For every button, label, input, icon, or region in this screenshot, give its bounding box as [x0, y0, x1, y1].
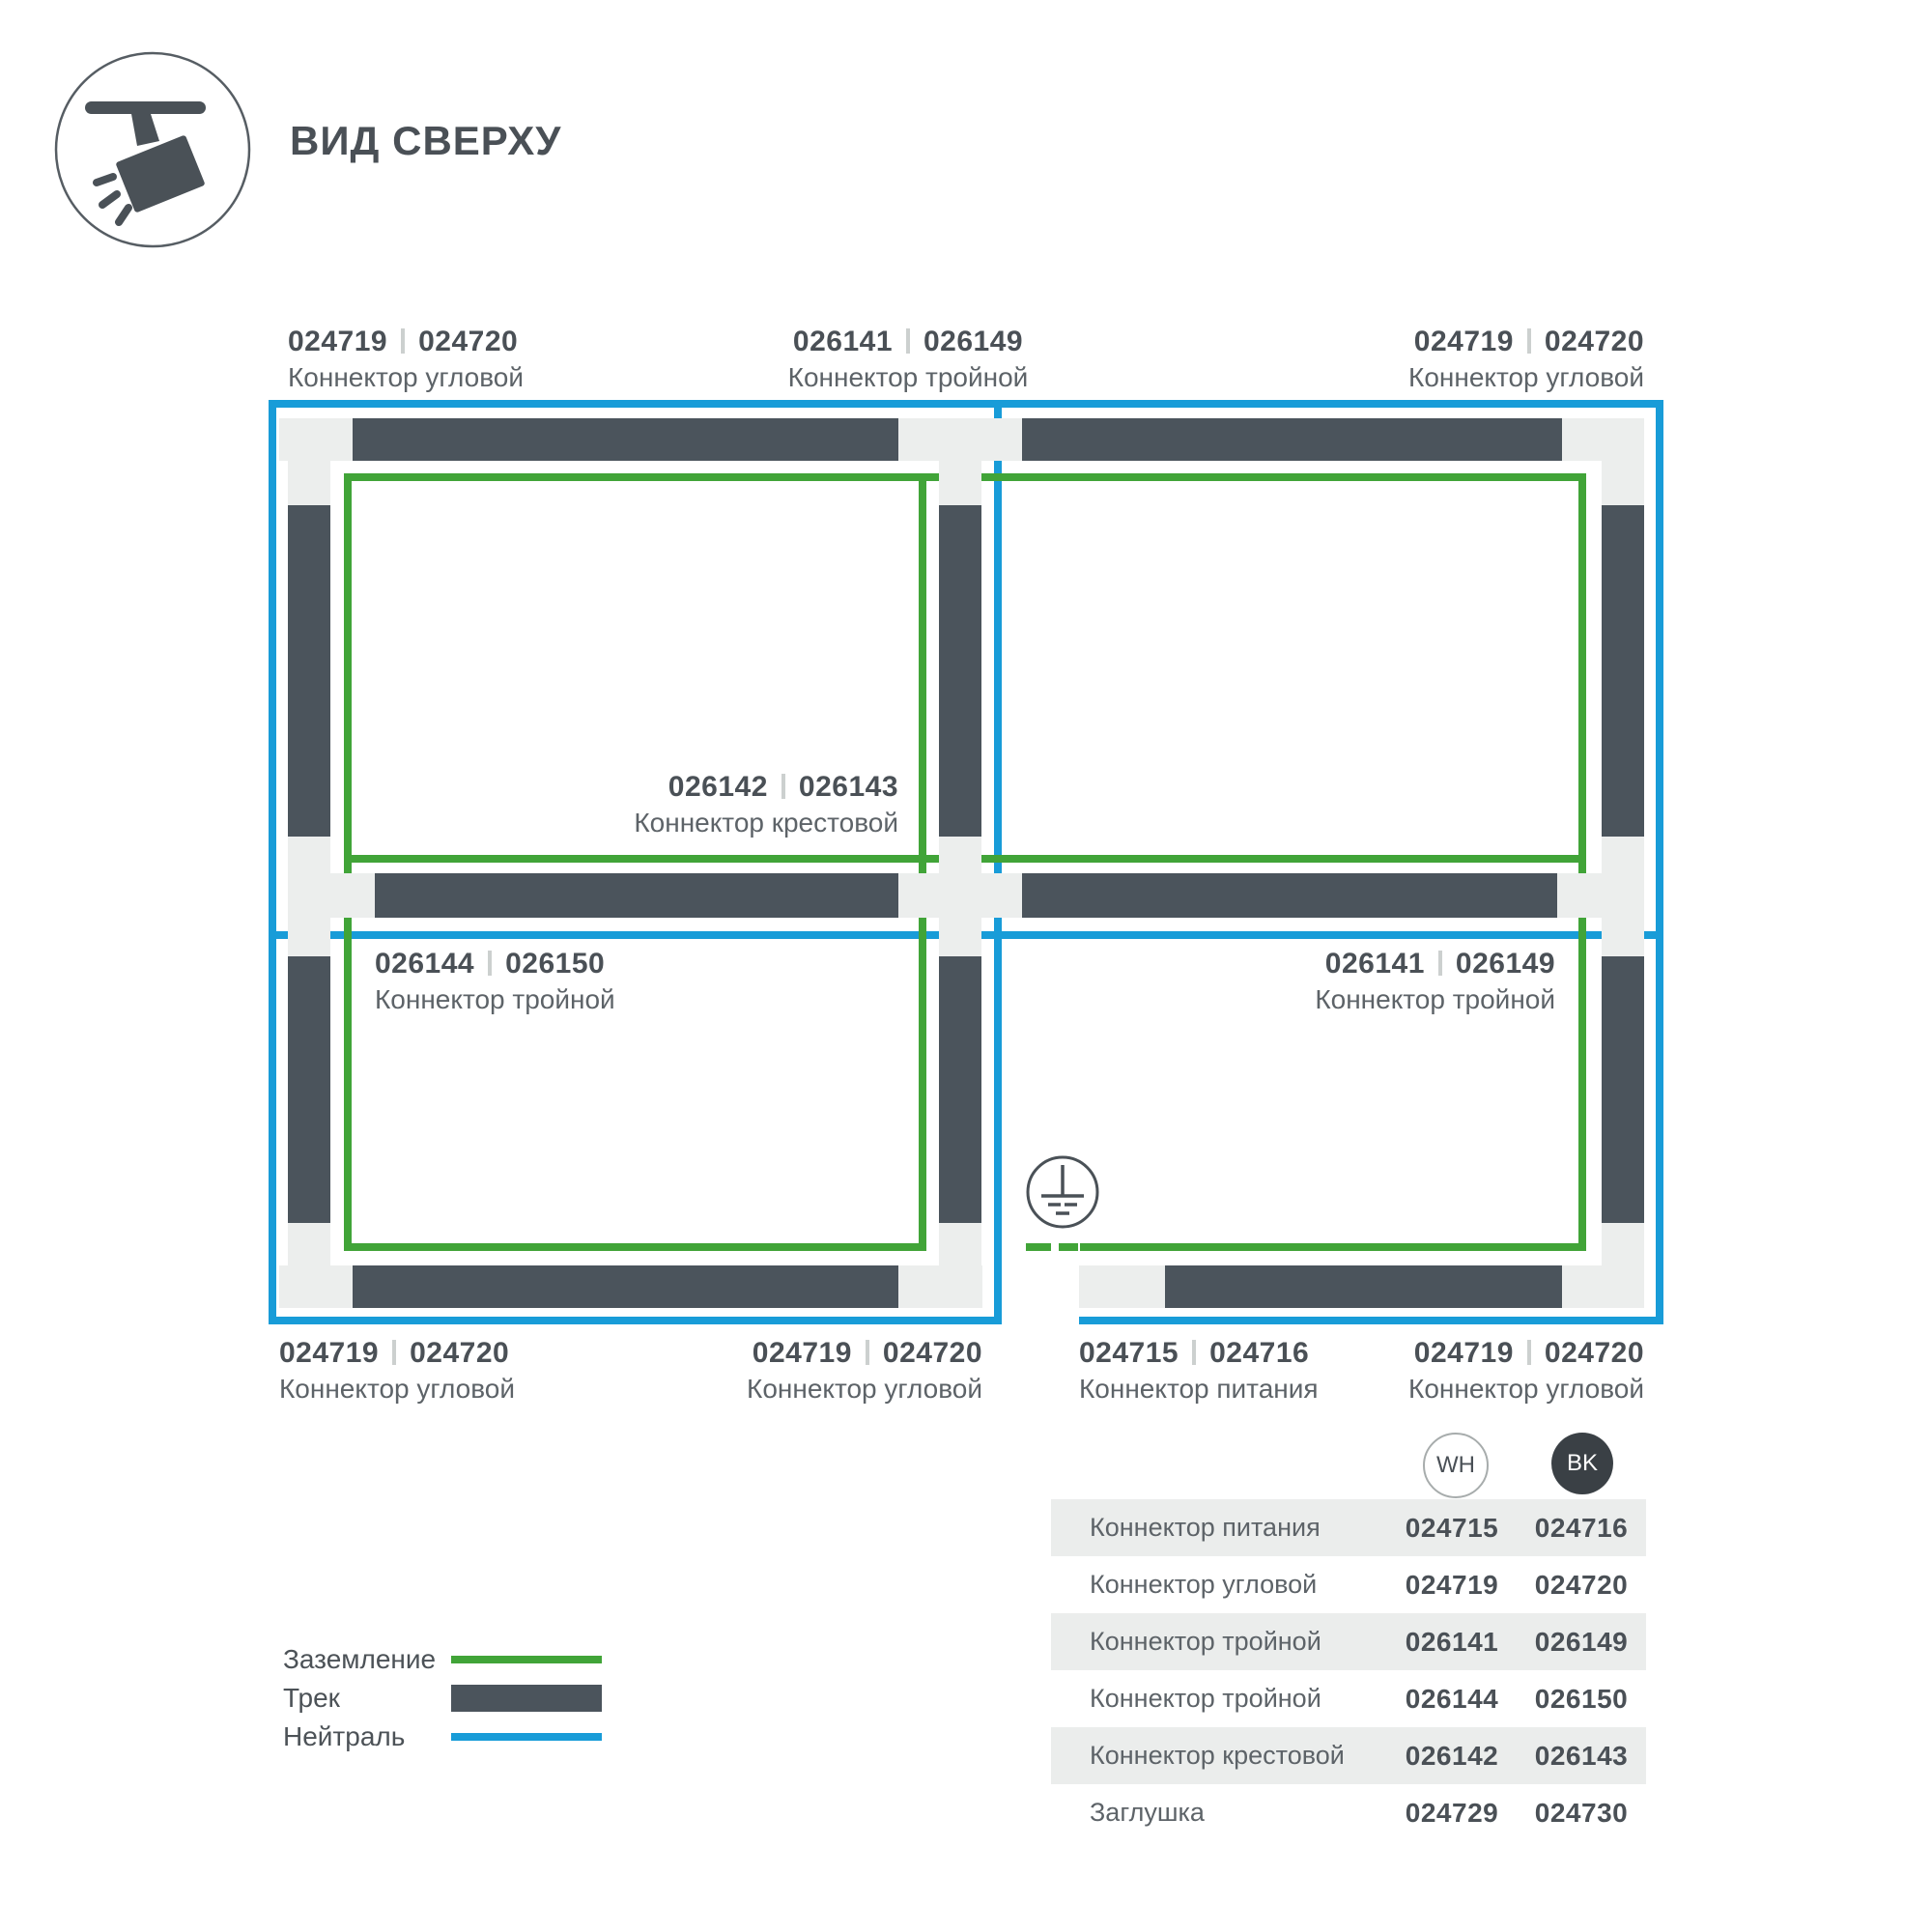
- connector-block-tee-left: [288, 837, 330, 956]
- connector-block-corner-bottom-right: [1562, 1265, 1644, 1308]
- page-title: ВИД СВЕРХУ: [290, 118, 561, 164]
- ground-line-bottom-left: [344, 1243, 926, 1251]
- connector-block-power-feed: [1079, 1265, 1165, 1308]
- code-separator: [1527, 1340, 1531, 1365]
- article-codes: 026141026149: [739, 326, 1077, 358]
- connector-block-corner-top-left: [288, 461, 330, 505]
- connector-name: Коннектор угловой: [1408, 1374, 1644, 1405]
- color-badge-white: WH: [1423, 1433, 1489, 1498]
- code-separator: [906, 328, 910, 354]
- connector-block-tee-top: [898, 418, 1022, 461]
- part-name: Коннектор угловой: [1051, 1570, 1387, 1600]
- track-spotlight-icon: [53, 50, 252, 249]
- connector-label-bottom-middle: 024719024720 Коннектор угловой: [747, 1337, 982, 1405]
- connector-label-middle-left: 026144026150 Коннектор тройной: [375, 948, 615, 1015]
- part-code-bk: 024716: [1517, 1513, 1646, 1544]
- part-name: Заглушка: [1051, 1798, 1387, 1828]
- connector-label-bottom-left: 024719024720 Коннектор угловой: [279, 1337, 515, 1405]
- legend-label: Трек: [283, 1683, 451, 1714]
- part-code-wh: 026142: [1387, 1741, 1517, 1772]
- connector-block-corner-top-right: [1562, 418, 1644, 461]
- part-code-bk: 024730: [1517, 1798, 1646, 1829]
- code-separator: [781, 774, 785, 799]
- track-segment: [288, 956, 330, 1223]
- track-segment: [375, 873, 898, 918]
- parts-table: Коннектор питания 024715 024716 Коннекто…: [1051, 1499, 1646, 1841]
- legend-label: Заземление: [283, 1644, 451, 1675]
- track-segment: [939, 956, 981, 1223]
- code-separator: [1527, 328, 1531, 354]
- article-codes: 024719024720: [279, 1337, 515, 1370]
- part-code-bk: 026143: [1517, 1741, 1646, 1772]
- track-segment: [1602, 956, 1644, 1223]
- table-row: Заглушка 024729 024730: [1051, 1784, 1646, 1841]
- neutral-line-swatch: [451, 1733, 602, 1741]
- page: ВИД СВЕРХУ: [0, 0, 1932, 1932]
- neutral-line-right: [1656, 400, 1663, 1324]
- legend-item-ground: Заземление: [283, 1640, 602, 1679]
- part-code-bk: 026149: [1517, 1627, 1646, 1658]
- article-codes: 024719024720: [1408, 326, 1644, 358]
- article-codes: 024719024720: [1408, 1337, 1644, 1370]
- track-segment: [1602, 505, 1644, 837]
- connector-block-tee-top: [939, 461, 981, 505]
- part-name: Коннектор питания: [1051, 1513, 1387, 1543]
- connector-name: Коннектор тройной: [739, 362, 1077, 393]
- legend-label: Нейтраль: [283, 1721, 451, 1752]
- color-badge-black: BK: [1551, 1433, 1613, 1494]
- connector-label-center-cross: 026142026143 Коннектор крестовой: [634, 771, 898, 838]
- connector-name: Коннектор угловой: [1408, 362, 1644, 393]
- connector-label-power-feed: 024715024716 Коннектор питания: [1079, 1337, 1319, 1405]
- neutral-line-left: [269, 400, 276, 1324]
- connector-name: Коннектор тройной: [1315, 984, 1555, 1015]
- part-name: Коннектор крестовой: [1051, 1741, 1387, 1771]
- connector-name: Коннектор тройной: [375, 984, 615, 1015]
- neutral-line-bottom-left: [269, 1317, 1002, 1324]
- ground-line-bottom-dash-1: [1026, 1243, 1051, 1251]
- table-row: Коннектор крестовой 026142 026143: [1051, 1727, 1646, 1784]
- legend: Заземление Трек Нейтраль: [283, 1640, 602, 1756]
- connector-block-tee-right: [1602, 837, 1644, 956]
- track-segment: [1022, 418, 1562, 461]
- neutral-line-top: [269, 400, 1663, 408]
- track-segment: [288, 505, 330, 837]
- legend-item-track: Трек: [283, 1679, 602, 1718]
- connector-label-top-middle: 026141026149 Коннектор тройной: [739, 326, 1077, 393]
- code-separator: [488, 951, 492, 976]
- table-row: Коннектор питания 024715 024716: [1051, 1499, 1646, 1556]
- code-separator: [1192, 1340, 1196, 1365]
- part-code-wh: 026141: [1387, 1627, 1517, 1658]
- article-codes: 024715024716: [1079, 1337, 1319, 1370]
- ground-line-bottom-right: [1080, 1243, 1586, 1251]
- ground-line-bottom-dash-2: [1059, 1243, 1078, 1251]
- connector-block-tee-left: [330, 873, 375, 918]
- track-segment: [939, 505, 981, 837]
- code-separator: [1438, 951, 1442, 976]
- connector-block-corner-bottom-right: [1602, 1223, 1644, 1265]
- connector-name: Коннектор питания: [1079, 1374, 1319, 1405]
- track-segment: [1165, 1265, 1562, 1308]
- code-separator: [401, 328, 405, 354]
- article-codes: 026141026149: [1315, 948, 1555, 980]
- connector-name: Коннектор угловой: [288, 362, 524, 393]
- neutral-line-bottom-right: [1079, 1317, 1663, 1324]
- connector-block-corner-bottom-middle: [939, 1223, 981, 1265]
- connector-label-top-right: 024719024720 Коннектор угловой: [1408, 326, 1644, 393]
- track-segment: [353, 418, 898, 461]
- connector-block-cross-center: [898, 873, 1022, 918]
- legend-item-neutral: Нейтраль: [283, 1718, 602, 1756]
- article-codes: 024719024720: [288, 326, 524, 358]
- connector-block-corner-bottom-left: [288, 1223, 330, 1265]
- connector-block-tee-right: [1557, 873, 1602, 918]
- connector-name: Коннектор угловой: [747, 1374, 982, 1405]
- connector-label-bottom-right: 024719024720 Коннектор угловой: [1408, 1337, 1644, 1405]
- track-segment: [1022, 873, 1557, 918]
- table-row: Коннектор тройной 026144 026150: [1051, 1670, 1646, 1727]
- connector-block-corner-top-right: [1602, 461, 1644, 505]
- track-bar-swatch: [451, 1685, 602, 1712]
- part-name: Коннектор тройной: [1051, 1684, 1387, 1714]
- connector-name: Коннектор угловой: [279, 1374, 515, 1405]
- connector-block-corner-top-left: [279, 418, 353, 461]
- ground-line-swatch: [451, 1656, 602, 1663]
- connector-name: Коннектор крестовой: [634, 808, 898, 838]
- table-row: Коннектор тройной 026141 026149: [1051, 1613, 1646, 1670]
- track-segment: [353, 1265, 898, 1308]
- connector-block-corner-bottom-middle: [898, 1265, 982, 1308]
- part-code-wh: 024719: [1387, 1570, 1517, 1601]
- table-row: Коннектор угловой 024719 024720: [1051, 1556, 1646, 1613]
- part-code-wh: 024729: [1387, 1798, 1517, 1829]
- connector-block-corner-bottom-left: [279, 1265, 353, 1308]
- part-name: Коннектор тройной: [1051, 1627, 1387, 1657]
- part-code-bk: 024720: [1517, 1570, 1646, 1601]
- part-code-bk: 026150: [1517, 1684, 1646, 1715]
- code-separator: [392, 1340, 396, 1365]
- part-code-wh: 024715: [1387, 1513, 1517, 1544]
- connector-label-middle-right: 026141026149 Коннектор тройной: [1315, 948, 1555, 1015]
- article-codes: 026142026143: [634, 771, 898, 804]
- article-codes: 024719024720: [747, 1337, 982, 1370]
- code-separator: [866, 1340, 869, 1365]
- connector-label-top-left: 024719024720 Коннектор угловой: [288, 326, 524, 393]
- article-codes: 026144026150: [375, 948, 615, 980]
- earth-ground-icon: [1024, 1153, 1101, 1231]
- part-code-wh: 026144: [1387, 1684, 1517, 1715]
